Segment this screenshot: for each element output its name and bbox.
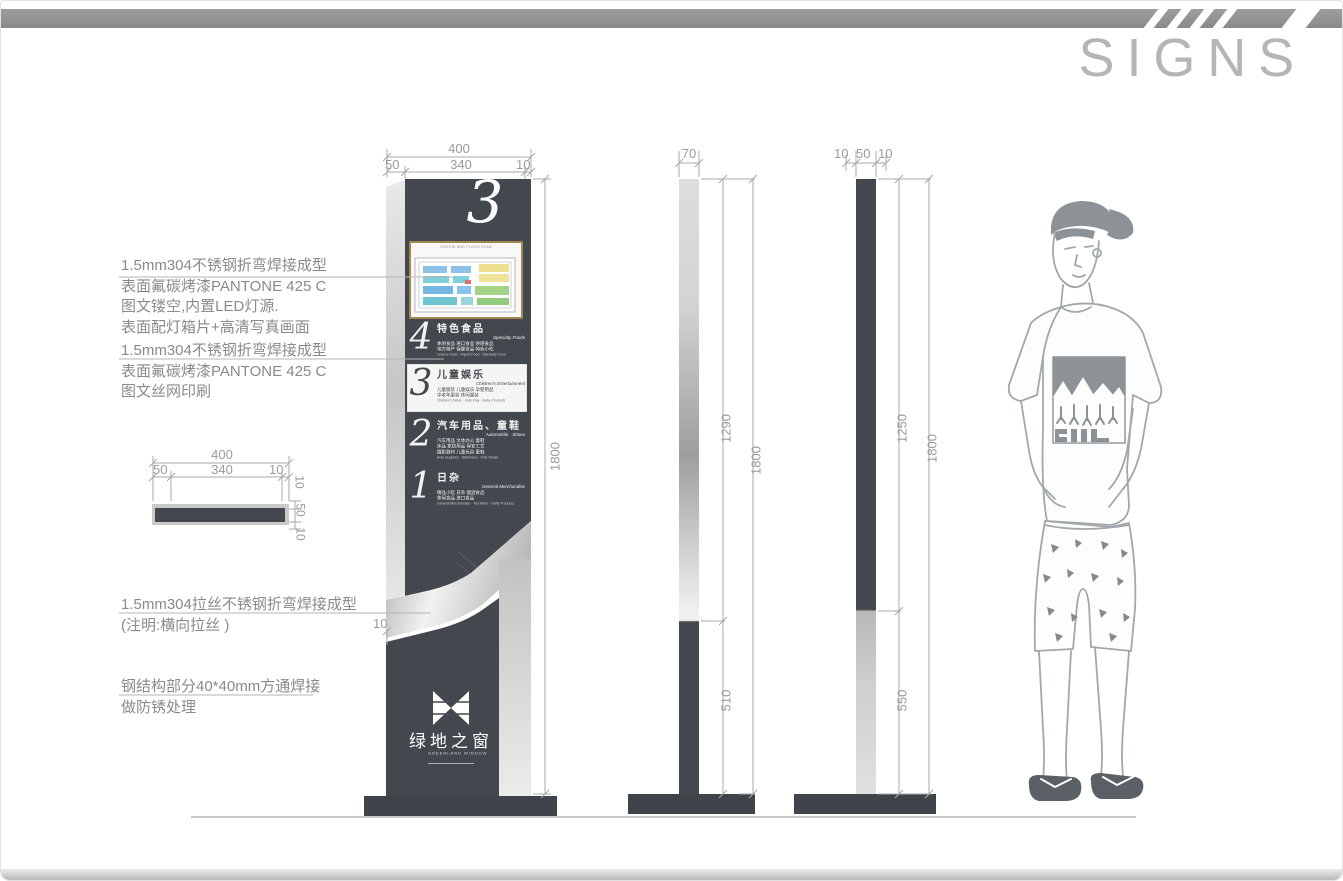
directory-row-4: 4 特色食品 Specialty Foods 休闲食品 进口食品 烘焙食品 地方… <box>407 318 527 363</box>
top-decorative-bar <box>1 9 1343 28</box>
category-title: 特色食品 <box>437 320 525 335</box>
category-english: General Merchandise · Tea Ware · Daily P… <box>437 502 525 507</box>
shorts-triangle-pattern <box>1043 539 1130 642</box>
dim-mid-total: 1800 <box>749 444 764 478</box>
dimension-linework <box>1 1 1343 881</box>
dim-right-t3: 10 <box>878 146 892 161</box>
dim-mid-lower: 510 <box>719 686 734 716</box>
floor-number: 3 <box>407 366 435 402</box>
annotation-line: 1.5mm304不锈钢折弯焊接成型 <box>121 256 451 277</box>
dim-section-t3: 10 <box>294 527 308 540</box>
annotation-line: 钢结构部分40*40mm方通焊接 <box>121 677 451 698</box>
design-sheet: SIGNS 1.5mm304不锈钢折弯焊接成型 表面氟碳烤漆PANTONE 42… <box>0 0 1343 881</box>
diagonal-stripe <box>1213 9 1238 28</box>
logo-rule <box>428 763 474 764</box>
diagonal-stripe <box>1190 9 1215 28</box>
dim-right-t2: 50 <box>856 146 870 161</box>
man-illustration <box>991 189 1176 819</box>
dim-section-seg2: 340 <box>199 462 245 477</box>
dim-section-seg3: 10 <box>269 462 283 477</box>
sheet-title: SIGNS <box>1079 27 1306 89</box>
annotation-steel-structure-spec: 钢结构部分40*40mm方通焊接 做防锈处理 <box>121 677 451 718</box>
annotation-line: 1.5mm304不锈钢折弯焊接成型 <box>121 341 451 362</box>
cap-icon <box>1051 201 1115 235</box>
page-bottom-edge <box>1 869 1342 880</box>
dim-front-seg3: 10 <box>516 157 530 172</box>
category-title: 汽车用品、童鞋 <box>437 417 525 432</box>
dim-right-lower: 550 <box>895 686 910 716</box>
dim-front-seg2: 340 <box>441 157 481 172</box>
annotation-line: (注明:横向拉丝 ) <box>121 616 451 637</box>
category-english: Leisure Food · Import Food · Specialty F… <box>437 353 525 358</box>
annotation-line: 表面配灯箱片+高清写真画面 <box>121 318 451 339</box>
floor-number: 4 <box>407 320 435 356</box>
dim-section-seg1: 50 <box>153 462 167 477</box>
sandal-icon <box>1029 775 1082 801</box>
floor-map-lightbox: GREENLAND FLOOR PLAN <box>409 241 523 319</box>
dim-right-upper: 1250 <box>895 412 910 446</box>
side-view-right-column <box>856 179 876 794</box>
sign-silver-column <box>499 559 531 796</box>
dim-front-seg1: 50 <box>385 157 399 172</box>
floor-number: 2 <box>407 417 435 453</box>
sign-base-plinth <box>364 796 557 817</box>
directory-row-2: 2 汽车用品、童鞋 Automobile · Shoes 汽车用品 文体办公 童… <box>407 415 527 463</box>
side-view-mid-column <box>679 179 699 794</box>
directory-row-3-current: 3 儿童娱乐 Children's Entertainment 儿童服装 儿童娱… <box>407 364 527 412</box>
side-view-right-base <box>794 794 936 814</box>
dim-mid-width: 70 <box>678 146 700 161</box>
annotation-line: 表面氟碳烤漆PANTONE 425 C <box>121 362 451 383</box>
section-view-core <box>155 508 285 522</box>
dim-section-t1: 10 <box>293 475 307 488</box>
category-english: Auto Supplies · Stationery · Kids Shoes <box>437 455 525 460</box>
dim-front-overall: 400 <box>431 141 487 156</box>
floor-numeral: 3 <box>449 173 521 231</box>
dim-section-t2: 50 <box>294 503 308 516</box>
category-title: 日杂 <box>437 469 525 484</box>
annotation-lightbox-spec: 1.5mm304不锈钢折弯焊接成型 表面氟碳烤漆PANTONE 425 C 图文… <box>121 256 451 339</box>
dim-mid-upper: 1290 <box>719 412 734 446</box>
floor-number: 1 <box>407 469 435 505</box>
map-title: GREENLAND FLOOR PLAN <box>413 245 519 249</box>
brand-name-cn: 绿地之窗 <box>405 727 497 752</box>
dim-right-t1: 10 <box>834 146 848 161</box>
dim-section-overall: 400 <box>197 447 247 462</box>
annotation-line: 做防锈处理 <box>121 698 451 719</box>
floor-plan-graphic <box>413 254 519 316</box>
dim-right-total: 1800 <box>925 432 940 466</box>
annotation-line: 1.5mm304拉丝不锈钢折弯焊接成型 <box>121 595 451 616</box>
brand-name-en: GREENLAND WINDOW <box>428 751 474 756</box>
annotation-brushed-steel-spec: 1.5mm304拉丝不锈钢折弯焊接成型 (注明:横向拉丝 ) <box>121 595 451 636</box>
annotation-silkscreen-spec: 1.5mm304不锈钢折弯焊接成型 表面氟碳烤漆PANTONE 425 C 图文… <box>121 341 451 403</box>
diagonal-stripe <box>1167 9 1192 28</box>
directory-row-1: 1 日杂 General Merchandise 精品小吃 日杂 烟酒食品 休闲… <box>407 467 527 516</box>
bowtie-watermark-icon <box>457 549 531 617</box>
dim-front-height: 1800 <box>548 437 563 477</box>
side-view-mid-base <box>628 794 755 814</box>
diagonal-stripe <box>1144 9 1169 28</box>
category-english: Children's Wear · Kids Play · Baby Produ… <box>437 399 525 404</box>
annotation-line: 表面氟碳烤漆PANTONE 425 C <box>121 277 451 298</box>
annotation-line: 图文镂空,内置LED灯源. <box>121 297 451 318</box>
sandal-icon <box>1091 773 1144 799</box>
diagonal-stripe <box>1282 9 1321 28</box>
category-title: 儿童娱乐 <box>437 366 525 381</box>
dim-front-edge: 10 <box>373 616 387 631</box>
annotation-line: 图文丝网印刷 <box>121 382 451 403</box>
